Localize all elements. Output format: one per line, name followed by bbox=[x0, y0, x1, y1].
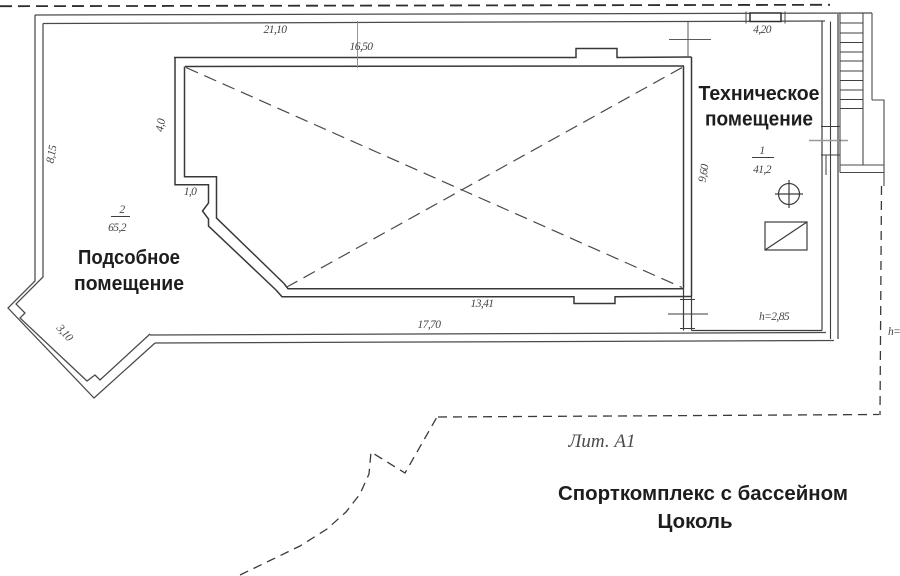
svg-text:3,10: 3,10 bbox=[53, 322, 75, 345]
svg-text:16,50: 16,50 bbox=[350, 41, 374, 53]
svg-text:Подсобное: Подсобное bbox=[78, 247, 180, 269]
svg-text:1: 1 bbox=[759, 145, 764, 157]
svg-text:1,0: 1,0 bbox=[184, 186, 197, 198]
svg-text:Техническое: Техническое bbox=[699, 83, 820, 105]
svg-text:13,41: 13,41 bbox=[471, 298, 494, 310]
svg-text:Цоколь: Цоколь bbox=[658, 511, 733, 533]
svg-text:4,20: 4,20 bbox=[753, 24, 772, 36]
svg-text:h=: h= bbox=[888, 326, 900, 338]
svg-text:41,2: 41,2 bbox=[753, 164, 772, 176]
svg-text:помещение: помещение bbox=[74, 273, 184, 295]
svg-text:h=2,85: h=2,85 bbox=[759, 311, 790, 323]
svg-text:8,15: 8,15 bbox=[45, 144, 60, 164]
svg-text:Спорткомплекс с бассейном: Спорткомплекс с бассейном bbox=[558, 483, 848, 505]
svg-text:4,0: 4,0 bbox=[154, 117, 168, 132]
svg-text:65,2: 65,2 bbox=[108, 222, 127, 234]
svg-text:21,10: 21,10 bbox=[264, 24, 288, 36]
svg-text:9,60: 9,60 bbox=[697, 163, 712, 183]
svg-text:помещение: помещение bbox=[705, 109, 813, 131]
svg-text:2: 2 bbox=[119, 204, 125, 216]
svg-text:Лит. А1: Лит. А1 bbox=[568, 431, 636, 452]
svg-text:17,70: 17,70 bbox=[418, 319, 442, 331]
